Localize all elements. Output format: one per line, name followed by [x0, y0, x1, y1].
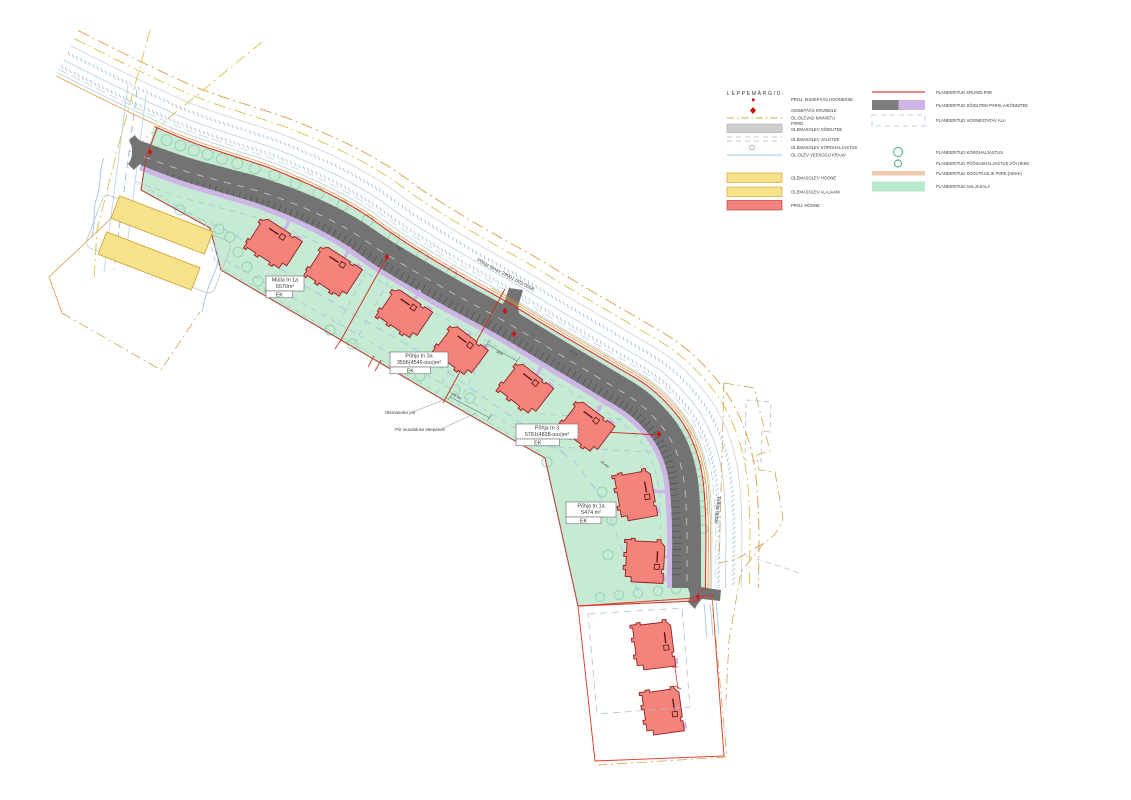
svg-text:OLEMASOLEV ALAJAAM: OLEMASOLEV ALAJAAM — [791, 190, 840, 195]
svg-text:OLEMASOLEV SÕIDUTEE: OLEMASOLEV SÕIDUTEE — [791, 127, 842, 132]
svg-text:EK: EK — [276, 292, 284, 298]
svg-text:LEPPEMÄRGID:: LEPPEMÄRGID: — [727, 90, 785, 97]
svg-text:EK: EK — [407, 368, 415, 374]
svg-text:Olemasolev piir: Olemasolev piir — [385, 410, 416, 415]
svg-text:Põhja tn 3: Põhja tn 3 — [535, 425, 559, 431]
svg-text:EK: EK — [580, 518, 588, 524]
svg-text:Põhja tn 3a: Põhja tn 3a — [405, 353, 432, 359]
svg-text:PLANEERITUD SÕIDUTEE-PARKLA/KÕ: PLANEERITUD SÕIDUTEE-PARKLA/KÕNNITEE — [936, 103, 1028, 108]
svg-text:6570m²: 6570m² — [276, 284, 294, 290]
svg-text:SISSEPÄÄS KRUNDILE: SISSEPÄÄS KRUNDILE — [791, 108, 837, 113]
svg-text:PLANEERITUD HALJASALA: PLANEERITUD HALJASALA — [936, 184, 990, 189]
svg-text:3596(4549-uus)m²: 3596(4549-uus)m² — [397, 360, 442, 366]
svg-text:PLANEERITUD KRUNDI PIIR: PLANEERITUD KRUNDI PIIR — [936, 90, 992, 95]
svg-text:OLEMASOLEV JALGTEE: OLEMASOLEV JALGTEE — [791, 137, 840, 142]
svg-text:OL.OLEV VEEKOGU KRAAV: OL.OLEV VEEKOGU KRAAV — [791, 153, 846, 158]
svg-text:EK: EK — [534, 440, 542, 446]
svg-text:5474 m²: 5474 m² — [581, 510, 601, 516]
svg-text:PLANEERITUD PÕÕSASHALJASTUS VÕ: PLANEERITUD PÕÕSASHALJASTUS VÕI HEKK — [936, 161, 1030, 166]
svg-text:Põhja tn 1a: Põhja tn 1a — [577, 503, 604, 509]
svg-text:PLANEERITUD HOONESTATAV ALA: PLANEERITUD HOONESTATAV ALA — [936, 118, 1006, 123]
svg-text:OLEMASOLEV HOONE: OLEMASOLEV HOONE — [791, 176, 836, 181]
svg-text:OL.OLEVAD KINNISTU: OL.OLEVAD KINNISTU — [791, 116, 835, 121]
svg-text:Mulla tn 1a: Mulla tn 1a — [272, 277, 298, 283]
svg-text:PLANEERITUD SOOVITUSLIK PIIRE: PLANEERITUD SOOVITUSLIK PIIRE (HEKK) — [936, 171, 1022, 176]
svg-text:PROJ. HOONE: PROJ. HOONE — [791, 203, 820, 208]
svg-text:PIIRID: PIIRID — [791, 121, 803, 126]
svg-text:5781(4828-uus)m²: 5781(4828-uus)m² — [525, 432, 570, 438]
svg-text:OLEMASOLEV KÕRGHALJASTUS: OLEMASOLEV KÕRGHALJASTUS — [791, 145, 858, 150]
svg-text:PLANEERITUD KÕRGHALJASTUS: PLANEERITUD KÕRGHALJASTUS — [936, 150, 1003, 155]
svg-text:Piir muudatuse ettepanek: Piir muudatuse ettepanek — [395, 427, 446, 432]
svg-text:PROJ. SISSEPÄÄS HOONESSE: PROJ. SISSEPÄÄS HOONESSE — [791, 97, 853, 102]
